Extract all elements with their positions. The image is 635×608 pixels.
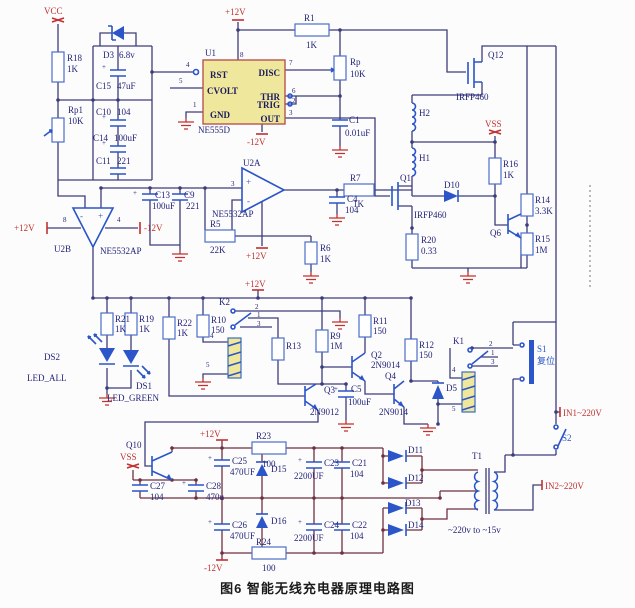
svg-text:0.01uF: 0.01uF [345, 128, 370, 138]
resistor-r24 [252, 547, 286, 559]
svg-text:D5: D5 [446, 383, 457, 393]
in1-label: IN1~220V [563, 408, 602, 418]
svg-text:IRFP460: IRFP460 [414, 210, 447, 220]
svg-text:150: 150 [419, 350, 433, 360]
capacitor-c28 [188, 485, 204, 491]
svg-text:5: 5 [179, 77, 183, 85]
svg-text:R11: R11 [373, 316, 388, 326]
capacitor-c23 [306, 462, 322, 468]
rst-inversion-bubble [194, 70, 199, 75]
svg-text:47uF: 47uF [117, 81, 136, 91]
resistor-r9 [316, 330, 328, 352]
svg-text:GND: GND [210, 110, 231, 120]
svg-text:C1: C1 [349, 115, 360, 125]
schematic-canvas: VCC +12V -12V +12V -12V +12V +12V VSS VS… [0, 0, 635, 608]
n12-bottom-label: -12V [204, 563, 223, 573]
svg-text:S2: S2 [562, 433, 572, 443]
svg-text:2200UF: 2200UF [294, 533, 324, 543]
svg-text:3: 3 [491, 358, 495, 366]
svg-text:104: 104 [350, 531, 364, 541]
svg-text:+: + [102, 113, 106, 121]
svg-text:4: 4 [186, 61, 190, 69]
svg-text:CVOLT: CVOLT [207, 86, 238, 96]
svg-text:C4: C4 [347, 194, 358, 204]
svg-text:Q12: Q12 [488, 50, 504, 60]
svg-text:Rp1: Rp1 [68, 105, 83, 115]
svg-text:IRFP460: IRFP460 [456, 92, 489, 102]
svg-text:+: + [102, 139, 106, 147]
svg-text:1M: 1M [330, 341, 343, 351]
svg-text:3: 3 [231, 180, 235, 188]
diode-d13 [388, 502, 406, 514]
potentiometer-rp [334, 56, 346, 80]
svg-text:8: 8 [63, 216, 67, 224]
svg-text:+: + [246, 177, 251, 187]
potentiometer-rp1 [52, 118, 64, 142]
resistor-r12 [405, 339, 417, 361]
svg-text:RST: RST [210, 70, 228, 80]
svg-text:H1: H1 [419, 153, 430, 163]
svg-text:C9: C9 [184, 190, 195, 200]
svg-text:Rp: Rp [350, 57, 361, 67]
svg-text:R6: R6 [320, 243, 331, 253]
diode-d14 [388, 524, 406, 536]
svg-text:C24: C24 [324, 520, 340, 530]
svg-text:1: 1 [257, 311, 261, 319]
svg-text:C21: C21 [352, 458, 367, 468]
svg-text:3: 3 [257, 320, 261, 328]
svg-text:+: + [298, 456, 302, 464]
resistor-r14 [521, 194, 533, 216]
capacitor-c27 [132, 485, 148, 491]
svg-text:D16: D16 [271, 516, 287, 526]
svg-text:R9: R9 [330, 331, 341, 341]
svg-text:C22: C22 [352, 520, 367, 530]
u2a-ref: U2A [243, 158, 261, 168]
resistor-r20 [406, 234, 418, 260]
svg-text:C13: C13 [155, 190, 171, 200]
svg-text:Q1: Q1 [400, 173, 411, 183]
resistor-r15 [521, 233, 533, 255]
svg-text:470UF: 470UF [230, 531, 255, 541]
switch-s1[interactable] [520, 340, 534, 384]
svg-text:DS1: DS1 [136, 381, 152, 391]
svg-text:10K: 10K [68, 116, 84, 126]
capacitor-c26 [214, 524, 230, 530]
svg-text:104: 104 [350, 469, 364, 479]
svg-text:+: + [208, 454, 212, 462]
svg-text:1K: 1K [67, 64, 79, 74]
svg-text:D11: D11 [408, 445, 423, 455]
svg-text:0.33: 0.33 [421, 246, 437, 256]
diode-d11 [388, 450, 406, 462]
svg-text:4: 4 [210, 332, 214, 340]
p12-q10-label: +12V [200, 429, 221, 439]
svg-text:470UF: 470UF [230, 467, 255, 477]
svg-text:R15: R15 [535, 234, 551, 244]
svg-text:5: 5 [452, 405, 456, 413]
relay-k2 [228, 309, 251, 378]
svg-text:3.3K: 3.3K [535, 206, 553, 216]
svg-text:OUT: OUT [260, 114, 280, 124]
svg-text:K1: K1 [453, 336, 464, 346]
svg-text:R19: R19 [139, 314, 155, 324]
svg-text:D12: D12 [408, 473, 424, 483]
svg-text:R14: R14 [535, 195, 551, 205]
resistor-r21 [101, 313, 113, 335]
svg-text:Q10: Q10 [126, 440, 142, 450]
svg-text:C23: C23 [324, 458, 340, 468]
svg-text:1M: 1M [535, 245, 548, 255]
svg-text:3: 3 [289, 109, 293, 117]
resistor-r23 [252, 442, 286, 454]
svg-text:D14: D14 [408, 520, 424, 530]
svg-text:104: 104 [150, 492, 164, 502]
u2b-part: NE5532AP [100, 246, 142, 256]
led-ds2 [88, 334, 115, 364]
in2-label: IN2~220V [545, 481, 584, 491]
svg-text:2: 2 [255, 303, 259, 311]
resistor-r5 [205, 230, 235, 242]
svg-text:Q6: Q6 [490, 228, 501, 238]
svg-text:C26: C26 [232, 520, 248, 530]
svg-text:R22: R22 [177, 318, 192, 328]
svg-text:10K: 10K [350, 69, 366, 79]
resistor-r1 [295, 24, 329, 36]
vcc-label: VCC [44, 6, 63, 16]
svg-text:+: + [208, 518, 212, 526]
svg-text:R13: R13 [286, 341, 302, 351]
led-ds1 [123, 350, 150, 378]
svg-text:8: 8 [240, 51, 244, 59]
svg-text:D15: D15 [271, 464, 287, 474]
svg-text:2200UF: 2200UF [294, 471, 324, 481]
transistor-q2 [352, 353, 365, 381]
u1-ref: U1 [205, 48, 216, 58]
mosfet-q1 [392, 182, 398, 210]
svg-text:100: 100 [262, 563, 276, 573]
figure-caption: 图6 智能无线充电器原理电路图 [0, 578, 635, 597]
circuit-diagram: VCC +12V -12V +12V -12V +12V +12V VSS VS… [0, 0, 635, 608]
svg-text:4: 4 [452, 366, 456, 374]
svg-text:R20: R20 [421, 235, 437, 245]
p12-rail-label: +12V [245, 279, 266, 289]
diode-d12 [388, 477, 406, 489]
u2b-ref: U2B [54, 244, 71, 254]
svg-text:LED_GREEN: LED_GREEN [107, 393, 159, 403]
svg-text:-: - [80, 211, 83, 221]
svg-text:2N9014: 2N9014 [379, 407, 408, 417]
svg-text:~220v to ~15v: ~220v to ~15v [448, 525, 501, 535]
svg-text:DS2: DS2 [44, 352, 60, 362]
svg-text:D10: D10 [444, 180, 460, 190]
mosfet-q12 [468, 58, 482, 88]
svg-text:C11: C11 [96, 156, 111, 166]
svg-text:1K: 1K [320, 254, 332, 264]
u1-part: NE555D [198, 125, 230, 135]
svg-text:C25: C25 [232, 456, 248, 466]
svg-text:DISC: DISC [258, 68, 280, 78]
svg-text:Q4: Q4 [385, 371, 396, 381]
svg-text:1K: 1K [177, 328, 189, 338]
svg-text:R16: R16 [503, 159, 519, 169]
svg-text:+: + [98, 211, 103, 221]
svg-text:2: 2 [489, 340, 493, 348]
svg-text:C15: C15 [96, 81, 112, 91]
transistor-q4 [394, 381, 404, 407]
resistor-r6 [305, 242, 317, 264]
svg-text:R7: R7 [350, 173, 361, 183]
svg-text:R1: R1 [304, 13, 315, 23]
svg-text:470u: 470u [206, 492, 225, 502]
svg-text:22K: 22K [210, 245, 226, 255]
svg-text:TRIG: TRIG [257, 100, 280, 110]
n12-u2b-label: -12V [144, 223, 163, 233]
u2a-part: NE5532AP [212, 209, 254, 219]
svg-text:+: + [133, 189, 137, 197]
svg-text:LED_ALL: LED_ALL [27, 373, 67, 383]
svg-text:C14: C14 [93, 133, 109, 143]
svg-text:2N9012: 2N9012 [310, 407, 339, 417]
svg-text:104: 104 [345, 205, 359, 215]
svg-text:2N9014: 2N9014 [371, 360, 400, 370]
svg-text:C27: C27 [150, 481, 166, 491]
svg-text:-: - [247, 196, 250, 206]
inductor-h1 [412, 148, 416, 176]
svg-text:2: 2 [292, 97, 296, 105]
svg-text:R21: R21 [115, 314, 130, 324]
svg-text:100uF: 100uF [152, 201, 175, 211]
svg-text:R18: R18 [67, 53, 83, 63]
diode-d5 [432, 383, 444, 399]
svg-text:Q3: Q3 [324, 385, 335, 395]
diode-d10 [444, 190, 458, 202]
resistor-r10 [197, 315, 209, 337]
svg-text:复位: 复位 [537, 355, 555, 366]
svg-text:+: + [102, 63, 106, 71]
svg-text:150: 150 [373, 326, 387, 336]
svg-text:6.8v: 6.8v [119, 50, 135, 60]
svg-text:100uF: 100uF [348, 397, 371, 407]
svg-text:4: 4 [117, 216, 121, 224]
vss-right-label: VSS [485, 119, 502, 129]
svg-text:H2: H2 [419, 108, 430, 118]
p12-u2a-label: +12V [246, 251, 267, 261]
transformer-t1 [475, 468, 498, 514]
svg-text:C28: C28 [206, 481, 222, 491]
svg-text:D3: D3 [103, 50, 114, 60]
n12-555-label: -12V [247, 137, 266, 147]
resistor-r11 [359, 315, 371, 337]
svg-text:5: 5 [206, 361, 210, 369]
capacitor-c1 [332, 120, 348, 126]
inductor-h2 [412, 103, 416, 131]
svg-text:6: 6 [292, 87, 296, 95]
svg-text:C5: C5 [351, 384, 362, 394]
svg-text:221: 221 [186, 201, 200, 211]
transistor-q10 [152, 452, 172, 480]
svg-text:1K: 1K [139, 324, 151, 334]
p12-top-label: +12V [225, 7, 246, 17]
svg-text:R12: R12 [419, 340, 434, 350]
svg-text:7: 7 [289, 59, 293, 67]
resistor-r13 [272, 338, 284, 360]
svg-text:T1: T1 [472, 451, 482, 461]
svg-text:1K: 1K [115, 324, 127, 334]
svg-text:K2: K2 [219, 297, 230, 307]
transistor-q6 [508, 214, 521, 238]
svg-text:221: 221 [117, 156, 131, 166]
svg-text:+: + [182, 479, 186, 487]
capacitor-c25 [214, 460, 230, 466]
svg-text:1K: 1K [503, 170, 515, 180]
svg-text:D13: D13 [405, 498, 421, 508]
p12-u2b-label: +12V [14, 223, 35, 233]
svg-text:R10: R10 [211, 315, 227, 325]
svg-text:R23: R23 [256, 431, 272, 441]
diode-d16 [256, 514, 268, 528]
svg-text:104: 104 [117, 107, 131, 117]
svg-text:R5: R5 [210, 219, 221, 229]
ground-symbols [99, 118, 476, 435]
resistor-r22 [163, 317, 175, 339]
resistor-r16 [489, 158, 501, 184]
svg-text:R24: R24 [256, 537, 272, 547]
svg-text:S1: S1 [537, 344, 547, 354]
svg-text:1: 1 [491, 349, 495, 357]
capacitor-c24 [306, 524, 322, 530]
svg-text:1K: 1K [306, 40, 318, 50]
svg-text:Q2: Q2 [371, 350, 382, 360]
svg-text:1: 1 [193, 101, 197, 109]
labels: VCC +12V -12V +12V -12V +12V +12V VSS VS… [14, 6, 602, 573]
vss-left-label: VSS [120, 452, 137, 462]
resistor-r18 [52, 52, 64, 82]
svg-text:100uF: 100uF [114, 133, 137, 143]
capacitor-c4 [329, 197, 345, 203]
svg-text:+: + [298, 518, 302, 526]
